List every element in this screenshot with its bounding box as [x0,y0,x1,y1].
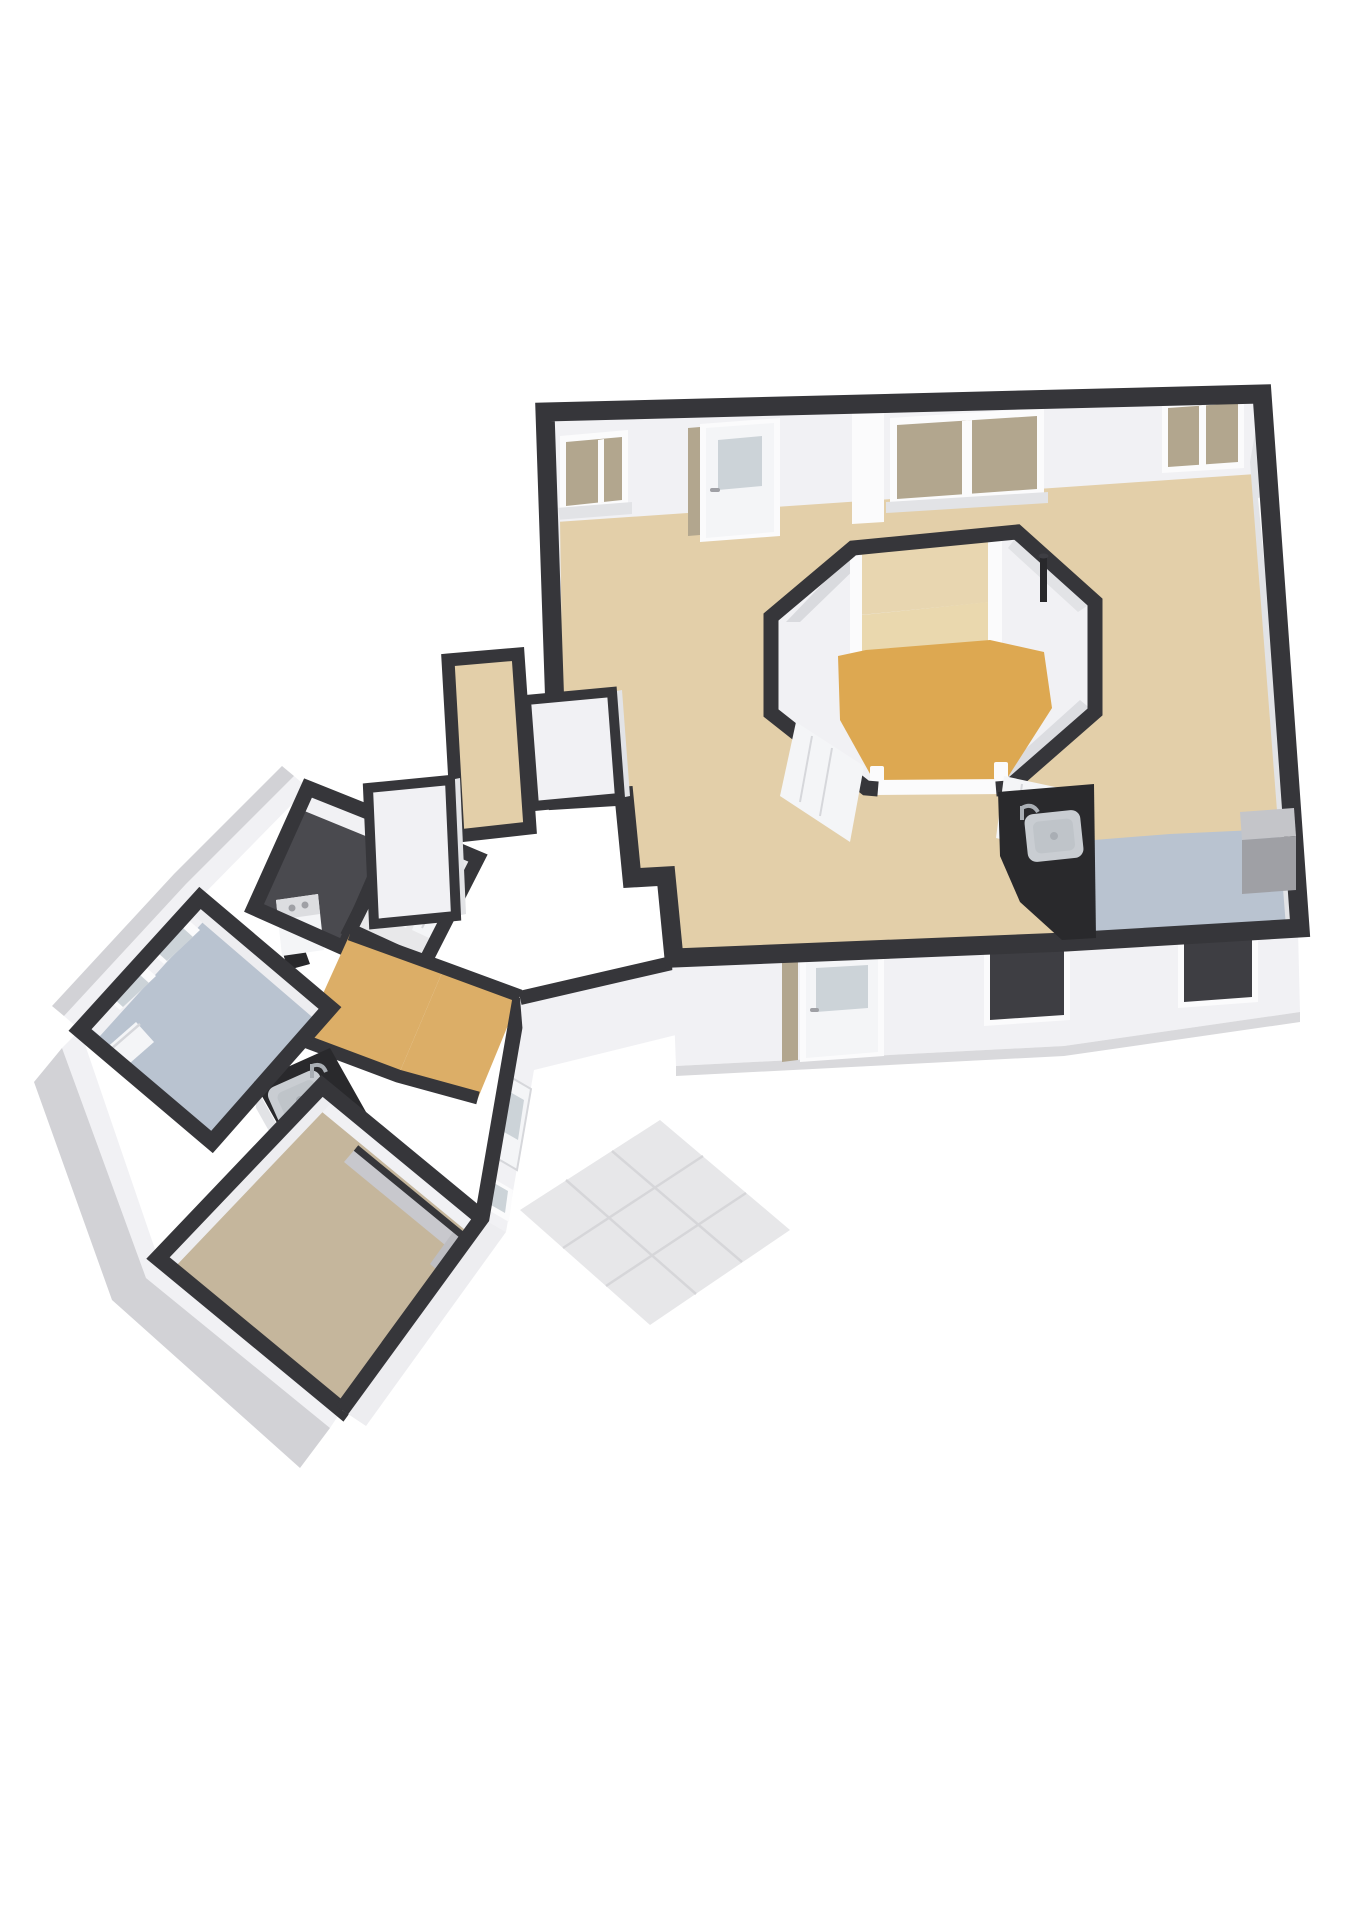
floorplan-render: 3D dollhouse floor plan render — two flo… [0,0,1358,1920]
wall-pilaster [852,406,884,524]
storage-closet-box [368,778,466,924]
cabin-wall-right [988,539,1002,651]
core-threshold [874,779,1006,795]
floorplan-canvas: 3D dollhouse floor plan render — two flo… [0,0,1358,1920]
window-backing [566,437,622,506]
door-sidelight [688,427,700,536]
dark-window [1178,934,1258,1008]
washer-knob [289,905,296,912]
door-glass [816,965,868,1012]
upper-building [368,394,1300,958]
dark-window [984,944,1070,1026]
exterior-entry-door [782,952,884,1062]
cabinet-front [1242,836,1296,894]
gray-cabinet [1240,808,1296,894]
window-wide [886,408,1048,513]
pipe-body [1040,556,1047,602]
vent-pipe [1039,554,1049,603]
closet-box-top [526,692,620,806]
patio-slab [520,1120,790,1325]
window-opening [1184,939,1252,1002]
connector-wall [520,962,680,1072]
window-mullion [598,439,604,503]
vestibule [368,654,630,924]
washer-knob [302,902,309,909]
window-opening [990,949,1064,1020]
glazed-interior-door [688,418,780,542]
door-handle [810,1008,819,1012]
closet-box-top [368,780,456,924]
window-mullion [962,420,972,495]
storage-closet-box [526,690,630,806]
patio [520,1120,790,1325]
pipe-top [1039,554,1049,559]
door-handle [710,488,720,492]
window [556,430,632,520]
door-glass [718,436,762,490]
door-sidelight [782,957,798,1062]
cabin-wall-left [850,555,862,665]
window-mullion [1199,405,1206,466]
kitchen-sink [1024,809,1085,863]
cabinet-top [1240,808,1296,840]
window [1162,397,1244,473]
